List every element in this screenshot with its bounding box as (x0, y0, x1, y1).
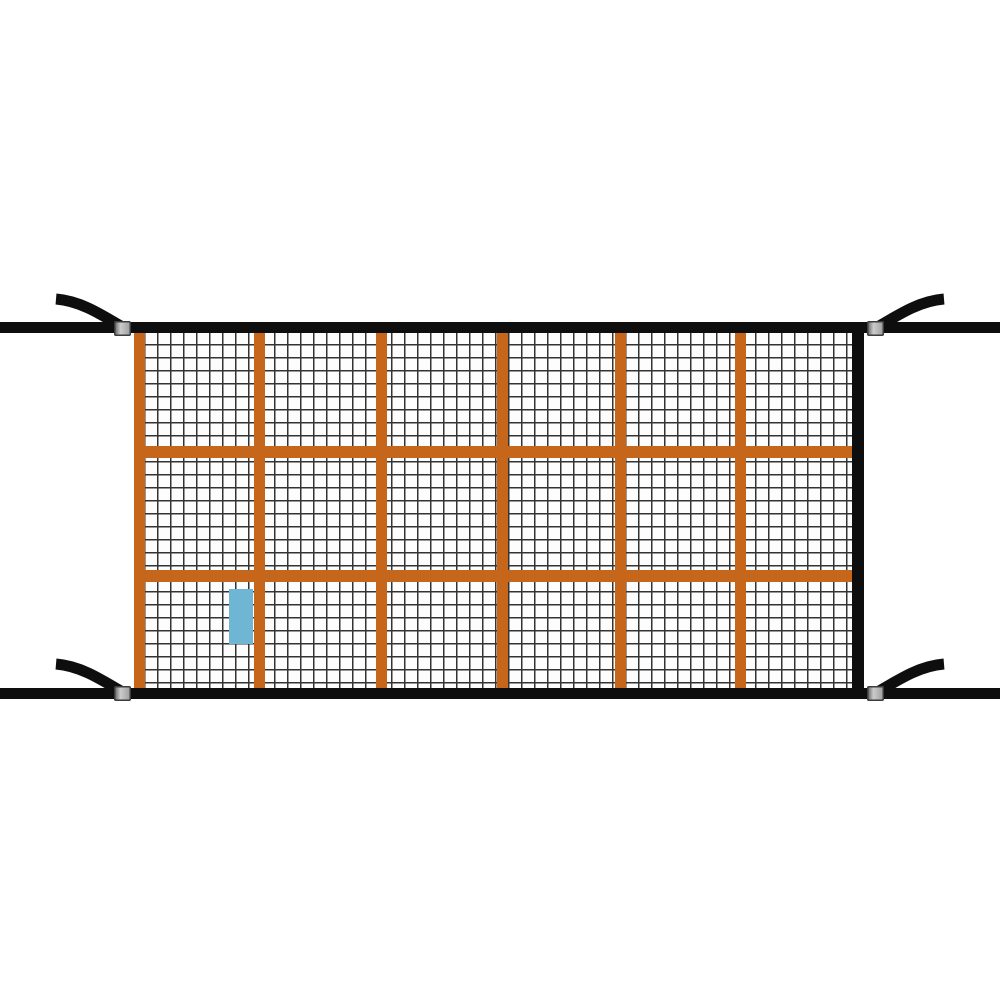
strap-buckle-top-right (867, 321, 884, 336)
product-tag (229, 589, 253, 644)
strap-buckle-bottom-left (114, 686, 131, 701)
net-right-border-strap (852, 326, 864, 692)
webbing-strap-vertical-3 (376, 326, 387, 692)
strap-buckle-bottom-right (867, 686, 884, 701)
webbing-strap-vertical-2 (254, 326, 265, 692)
webbing-strap-horizontal-1 (134, 446, 853, 458)
webbing-strap-vertical-4 (497, 326, 508, 692)
strap-buckle-top-left (114, 321, 131, 336)
webbing-strap-horizontal-2 (134, 570, 853, 582)
top-tie-down-strap (0, 322, 1000, 333)
product-image-cargo-net (0, 0, 1000, 1000)
webbing-strap-vertical-5 (615, 326, 626, 692)
bottom-tie-down-strap (0, 688, 1000, 699)
webbing-strap-vertical-6 (735, 326, 746, 692)
webbing-strap-vertical-1 (134, 326, 145, 692)
